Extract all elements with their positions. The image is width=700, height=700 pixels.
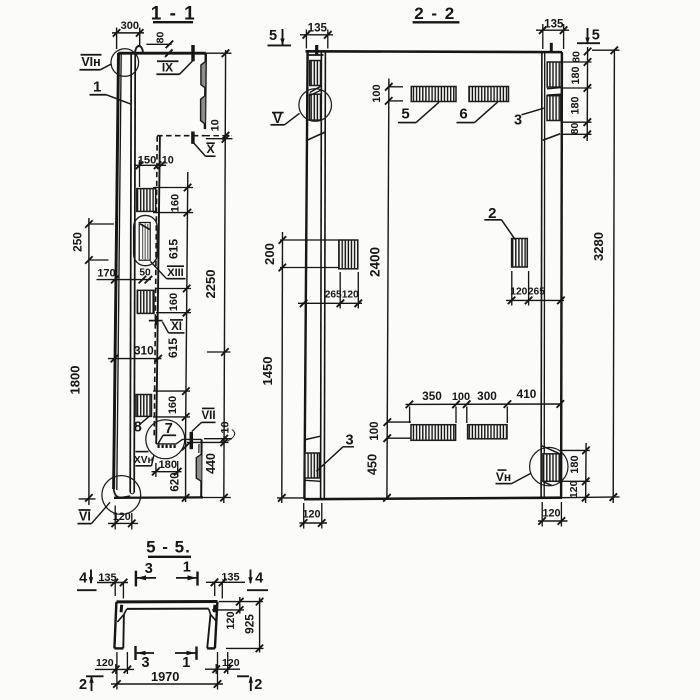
svg-text:100: 100 <box>452 391 470 403</box>
svg-text:7: 7 <box>165 421 173 437</box>
svg-text:135: 135 <box>308 21 328 34</box>
svg-text:VI: VI <box>79 510 91 524</box>
svg-text:XVн: XVн <box>134 455 154 466</box>
svg-text:120: 120 <box>510 287 527 298</box>
svg-text:5: 5 <box>401 106 409 123</box>
svg-text:310: 310 <box>134 344 154 358</box>
svg-text:3280: 3280 <box>591 232 606 261</box>
svg-text:160: 160 <box>168 293 180 311</box>
svg-text:3: 3 <box>514 113 522 129</box>
svg-text:2: 2 <box>79 677 87 693</box>
svg-text:180: 180 <box>569 96 581 114</box>
svg-text:VIн: VIн <box>81 55 100 69</box>
svg-text:5: 5 <box>269 28 277 44</box>
svg-text:5: 5 <box>592 28 600 44</box>
svg-text:265: 265 <box>528 287 545 298</box>
svg-text:180: 180 <box>570 66 582 84</box>
svg-text:620: 620 <box>169 472 181 491</box>
svg-text:265: 265 <box>325 290 342 301</box>
svg-text:300: 300 <box>121 20 139 32</box>
svg-text:XI: XI <box>171 321 182 333</box>
svg-text:180: 180 <box>158 459 177 471</box>
svg-text:1450: 1450 <box>260 357 275 386</box>
svg-text:VII: VII <box>201 410 215 422</box>
svg-text:3: 3 <box>141 655 149 671</box>
svg-text:100: 100 <box>371 84 383 102</box>
svg-text:Vн: Vн <box>496 470 511 484</box>
svg-text:2400: 2400 <box>367 247 382 277</box>
svg-text:120: 120 <box>342 290 359 301</box>
svg-text:1: 1 <box>93 79 101 96</box>
svg-text:2 - 2: 2 - 2 <box>414 4 456 23</box>
svg-text:80: 80 <box>155 32 167 44</box>
svg-text:120: 120 <box>225 611 237 629</box>
svg-text:180: 180 <box>569 455 581 473</box>
svg-text:200: 200 <box>262 243 277 265</box>
svg-text:1800: 1800 <box>68 366 83 395</box>
svg-text:250: 250 <box>71 232 85 252</box>
svg-text:440: 440 <box>204 453 218 474</box>
svg-text:450: 450 <box>364 454 379 475</box>
svg-text:10: 10 <box>210 119 222 131</box>
svg-text:1: 1 <box>183 560 191 576</box>
svg-text:V: V <box>273 111 282 126</box>
svg-text:100: 100 <box>369 421 381 440</box>
svg-text:410: 410 <box>517 387 537 401</box>
svg-text:135: 135 <box>544 17 564 30</box>
svg-text:10: 10 <box>220 421 232 433</box>
svg-text:2250: 2250 <box>203 270 218 299</box>
svg-text:4: 4 <box>79 571 87 587</box>
svg-text:615: 615 <box>167 239 181 259</box>
svg-text:120: 120 <box>568 480 580 498</box>
svg-text:6: 6 <box>459 106 467 123</box>
svg-text:925: 925 <box>242 614 256 634</box>
svg-text:120: 120 <box>302 509 320 521</box>
svg-text:350: 350 <box>422 389 442 403</box>
svg-text:2: 2 <box>254 677 262 693</box>
svg-text:300: 300 <box>477 389 497 403</box>
svg-text:170: 170 <box>97 268 115 280</box>
svg-text:1970: 1970 <box>151 669 179 684</box>
svg-text:8: 8 <box>134 420 142 436</box>
svg-text:4: 4 <box>255 571 263 587</box>
svg-text:X: X <box>206 142 214 156</box>
svg-text:1: 1 <box>182 655 190 671</box>
svg-text:80: 80 <box>569 123 581 135</box>
svg-text:3: 3 <box>145 561 153 577</box>
svg-text:160: 160 <box>167 396 179 414</box>
svg-text:5 - 5.: 5 - 5. <box>146 538 191 557</box>
svg-text:80: 80 <box>571 51 583 63</box>
svg-text:IX: IX <box>162 61 173 75</box>
svg-text:615: 615 <box>166 338 180 358</box>
svg-text:120: 120 <box>96 657 114 669</box>
svg-text:10: 10 <box>162 154 174 166</box>
svg-text:160: 160 <box>170 194 182 212</box>
svg-text:XIII: XIII <box>167 267 184 279</box>
